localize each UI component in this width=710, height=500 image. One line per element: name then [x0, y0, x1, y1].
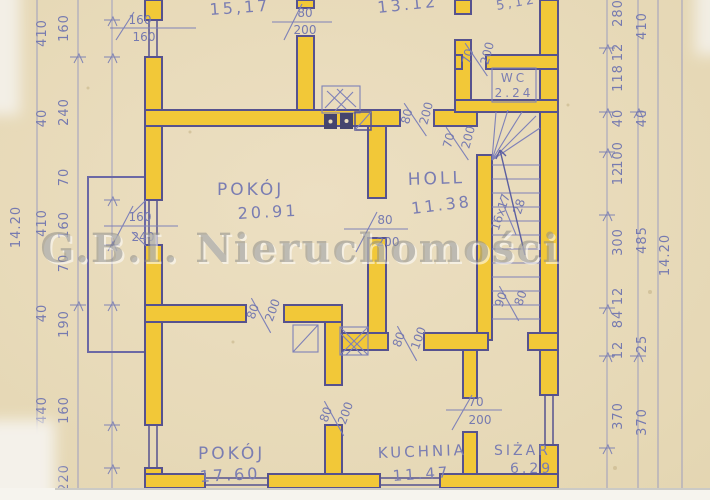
svg-text:190: 190 [57, 310, 72, 338]
svg-text:12: 12 [611, 287, 626, 306]
svg-text:240: 240 [57, 98, 72, 126]
svg-text:485: 485 [635, 226, 650, 254]
wc-area: 2.24 [495, 86, 534, 100]
svg-text:160: 160 [57, 14, 72, 42]
svg-text:84: 84 [611, 310, 626, 329]
svg-text:370: 370 [635, 408, 650, 436]
floor-plan-scan: 16x17 28 WC 2.24 15,17 13.12 5,12 POKÓJ … [0, 0, 710, 500]
svg-text:14.20: 14.20 [9, 206, 24, 248]
svg-text:70: 70 [468, 395, 483, 409]
room-pokoj-big-area: 20.91 [237, 201, 299, 223]
svg-text:40: 40 [611, 109, 626, 128]
room-holl-name: HOLL [407, 168, 465, 190]
room-spizar-name: SIŻAR [494, 441, 551, 459]
room-spizar-area: 6.29 [510, 461, 553, 477]
svg-text:G.B.I. Nieruchomości: G.B.I. Nieruchomości [40, 225, 560, 272]
room-pokoj-small-name: POKÓJ [198, 442, 265, 464]
svg-text:300: 300 [611, 228, 626, 256]
svg-text:160: 160 [129, 210, 152, 224]
svg-text:160: 160 [129, 13, 152, 27]
watermark: G.B.I. Nieruchomości G.B.I. Nieruchomośc… [40, 225, 562, 274]
svg-text:410: 410 [35, 19, 50, 47]
svg-text:14.20: 14.20 [658, 234, 673, 276]
svg-text:160: 160 [57, 396, 72, 424]
room-kuchnia-name: KUCHNIA [378, 441, 468, 462]
svg-text:100: 100 [611, 141, 626, 169]
svg-text:410: 410 [635, 12, 650, 40]
svg-text:12: 12 [611, 341, 626, 360]
svg-text:220: 220 [57, 464, 72, 492]
svg-text:370: 370 [611, 402, 626, 430]
svg-text:70: 70 [57, 168, 72, 187]
svg-text:40: 40 [35, 304, 50, 323]
svg-text:80: 80 [297, 6, 312, 20]
svg-text:40: 40 [35, 109, 50, 128]
wc-label: WC [501, 71, 527, 85]
svg-text:12: 12 [611, 167, 626, 186]
svg-text:160: 160 [133, 30, 156, 44]
svg-text:200: 200 [294, 23, 317, 37]
svg-text:118: 118 [611, 64, 626, 92]
svg-text:280: 280 [611, 0, 626, 27]
svg-text:25: 25 [635, 335, 650, 354]
room-pokoj-big-name: POKÓJ [217, 178, 284, 200]
svg-text:12: 12 [611, 43, 626, 62]
svg-text:440: 440 [35, 396, 50, 424]
floor-plan-drawing: 16x17 28 WC 2.24 15,17 13.12 5,12 POKÓJ … [0, 0, 710, 500]
svg-text:40: 40 [635, 109, 650, 128]
room-pokoj-small-area: 17.60 [199, 464, 261, 486]
svg-text:200: 200 [469, 413, 492, 427]
